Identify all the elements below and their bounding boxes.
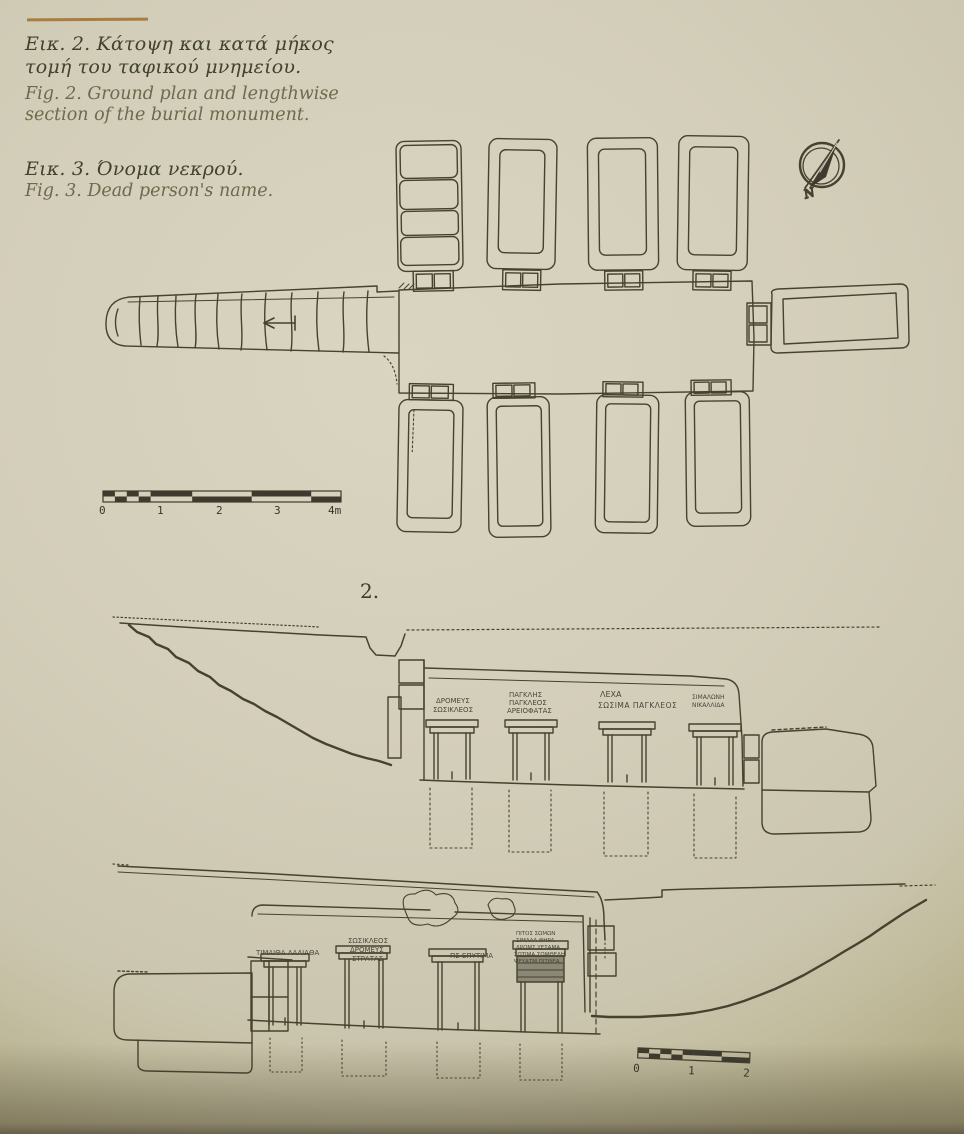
- ground-plan: [106, 136, 909, 538]
- inscription-line: ΣΩΣΙΜΑ ΠΑΓΚΛΕΟΣ: [598, 701, 677, 710]
- upper-section: ΔΡΟΜΕΥΣ ΣΩΣΙΚΛΕΟΣ ΠΑΓΚΛΗΣ ΠΑΓΚΛΕΟΣ ΑΡΕΙΟ…: [113, 617, 880, 858]
- inscription-line: ΝΙΚΑΛΛΙΔΑ: [692, 702, 725, 709]
- inscription-line: ΣΩΣΙΚΛΕΟΣ: [348, 937, 388, 945]
- inscription-line: ΣΩΤΙΜΑ ΣΩΜΘΕΛΗ: [514, 952, 565, 958]
- inscription-line: ΣΩΣΙΚΛΕΟΣ: [433, 706, 473, 714]
- burial-cist: [685, 380, 751, 527]
- door: [429, 949, 486, 1030]
- north-label: N: [801, 185, 817, 202]
- scale-tick-label: 1: [688, 1064, 695, 1077]
- figure-number: 2.: [360, 579, 379, 603]
- plan-direction-arrow: [264, 316, 295, 330]
- scale-tick-label: 2: [743, 1067, 750, 1080]
- scanned-page: Εικ. 2. Κάτοψη και κατά μήκος τομή του τ…: [0, 0, 964, 1134]
- dromos: [106, 286, 398, 384]
- dashed-cist-outlines: [430, 788, 736, 858]
- door: [426, 720, 478, 779]
- burial-cist: [396, 140, 464, 291]
- inscription-line: ΔΡΟΜΕΥΣ: [436, 697, 470, 705]
- central-corridor: [399, 281, 754, 394]
- compass-rose: N: [800, 140, 844, 202]
- inscription-line: ΠΣ ΕΠΥΤΙΜΑ: [450, 952, 493, 960]
- burial-cists-south: [397, 380, 751, 538]
- lacuna-outline: [488, 898, 515, 919]
- inscription-line: ΣΤΡΑΤΑΣ: [352, 955, 383, 963]
- fallen-block: [114, 971, 252, 1073]
- facade-wall: [420, 668, 744, 789]
- scale-tick-label: 2: [216, 504, 223, 517]
- inscription-line: ΑΡΕΙΟΦΑΤΑΣ: [507, 707, 552, 715]
- figure-drawing: N 0 1 2 3 4m 2.: [0, 0, 964, 1134]
- inscription-line: ΠΑΓΚΛΕΟΣ: [509, 699, 547, 707]
- door: [505, 720, 557, 780]
- burial-cist: [397, 383, 464, 532]
- burial-cist: [487, 138, 558, 290]
- inscription-line: ΣΙΜΑΛΑ ΘΗΡΑ: [516, 938, 555, 944]
- inscription-line: ΣΙΜΑΛΩΝΗ: [692, 694, 725, 701]
- burial-cist: [595, 382, 659, 534]
- inscription-line: ΠΙΤΟΣ ΣΩΜΩΝ: [516, 931, 555, 937]
- scale-tick-label: 3: [274, 504, 281, 517]
- inscriptions-lower: ΤΙΜΑΙΘΑ ΛΑΛΙΑΘΑ ΣΩΣΙΚΛΕΟΣ ΔΡΟΜΕΥΣ ΣΤΡΑΤΑ…: [255, 931, 565, 965]
- lower-section: ΤΙΜΑΙΘΑ ΛΑΛΙΑΘΑ ΣΩΣΙΚΛΕΟΣ ΔΡΟΜΕΥΣ ΣΤΡΑΤΑ…: [113, 864, 935, 1080]
- inscription-line: ΛΕΧΑ: [600, 690, 622, 699]
- lacuna-outline: [403, 890, 458, 926]
- burial-cist: [677, 136, 749, 291]
- door: [689, 724, 741, 785]
- burial-cist: [487, 383, 551, 538]
- scale-tick-label: 0: [99, 504, 106, 517]
- scale-tick-label: 4m: [328, 504, 342, 517]
- inscription-line: ΔΡΟΜΕΥΣ: [350, 946, 384, 954]
- fallen-block: [762, 727, 876, 834]
- section-scale-bar: 0 1 2: [633, 1048, 751, 1080]
- burial-cist: [587, 138, 659, 291]
- excavation-slope: [592, 900, 926, 1017]
- inscription-line: ΠΑΓΚΛΗΣ: [509, 691, 542, 699]
- door: [599, 722, 655, 782]
- scale-tick-label: 1: [157, 504, 164, 517]
- plan-scale-bar: 0 1 2 3 4m: [99, 491, 342, 517]
- inscriptions-upper: ΔΡΟΜΕΥΣ ΣΩΣΙΚΛΕΟΣ ΠΑΓΚΛΗΣ ΠΑΓΚΛΕΟΣ ΑΡΕΙΟ…: [433, 690, 725, 715]
- door: [261, 954, 309, 1025]
- inscription-line: ΤΙΜΑΙΘΑ ΛΑΛΙΑΘΑ: [255, 949, 319, 957]
- burial-cists-north: [396, 136, 749, 292]
- scale-tick-label: 0: [633, 1062, 640, 1075]
- excavation-slope: [129, 625, 391, 765]
- inscription-line: ΨΕΥΑΤΜ ΠΙΤΘΕΑ: [514, 959, 560, 965]
- side-chamber: [747, 284, 909, 353]
- dashed-cist-outlines: [270, 1038, 562, 1080]
- inscription-line: ΔΡΟΜΣ ΥΕΣΑΜΑ: [516, 945, 560, 951]
